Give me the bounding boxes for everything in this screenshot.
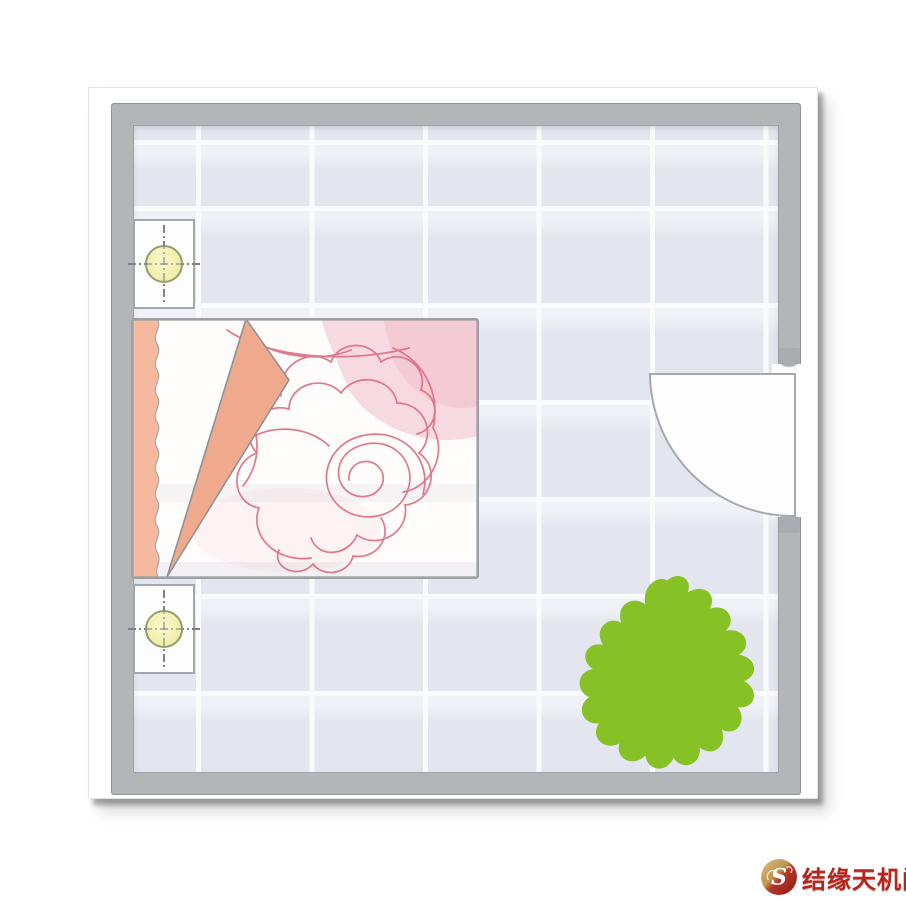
lamp-top — [145, 245, 183, 283]
plant-splat — [580, 576, 754, 769]
nightstand-bottom — [133, 584, 195, 674]
plant-icon — [575, 568, 761, 770]
bed-pillow-strip — [132, 319, 159, 577]
watermark-logo-icon: S — [760, 858, 798, 896]
lamp-crosshair-v-over-icon — [163, 590, 165, 668]
nightstand-top — [133, 219, 195, 309]
wall-cap-above-door — [779, 348, 799, 366]
wall-cap-below-door — [779, 515, 799, 533]
floor-plan-card — [88, 87, 818, 799]
watermark: S 结缘天机阁 — [760, 857, 906, 897]
bed — [131, 318, 479, 579]
lamp-crosshair-v-over-icon — [163, 225, 165, 303]
watermark-text: 结缘天机阁 — [802, 860, 906, 895]
logo-s-glyph: S — [771, 864, 787, 890]
lamp-bottom — [145, 610, 183, 648]
screenshot-canvas: S 结缘天机阁 — [0, 0, 906, 906]
